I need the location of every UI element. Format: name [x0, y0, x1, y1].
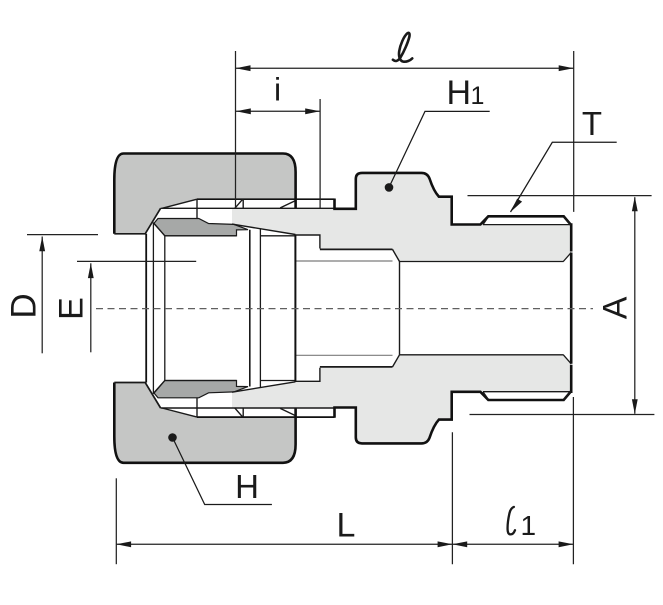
svg-text:L: L — [337, 507, 356, 545]
svg-text:H: H — [235, 468, 259, 505]
svg-text:E: E — [53, 297, 91, 320]
svg-text:D: D — [5, 293, 44, 318]
svg-text:T: T — [582, 105, 602, 142]
svg-text:i: i — [274, 72, 281, 108]
svg-text:1: 1 — [521, 510, 537, 541]
svg-text:H: H — [447, 74, 472, 112]
svg-text:A: A — [597, 296, 635, 319]
svg-text:1: 1 — [471, 82, 485, 110]
